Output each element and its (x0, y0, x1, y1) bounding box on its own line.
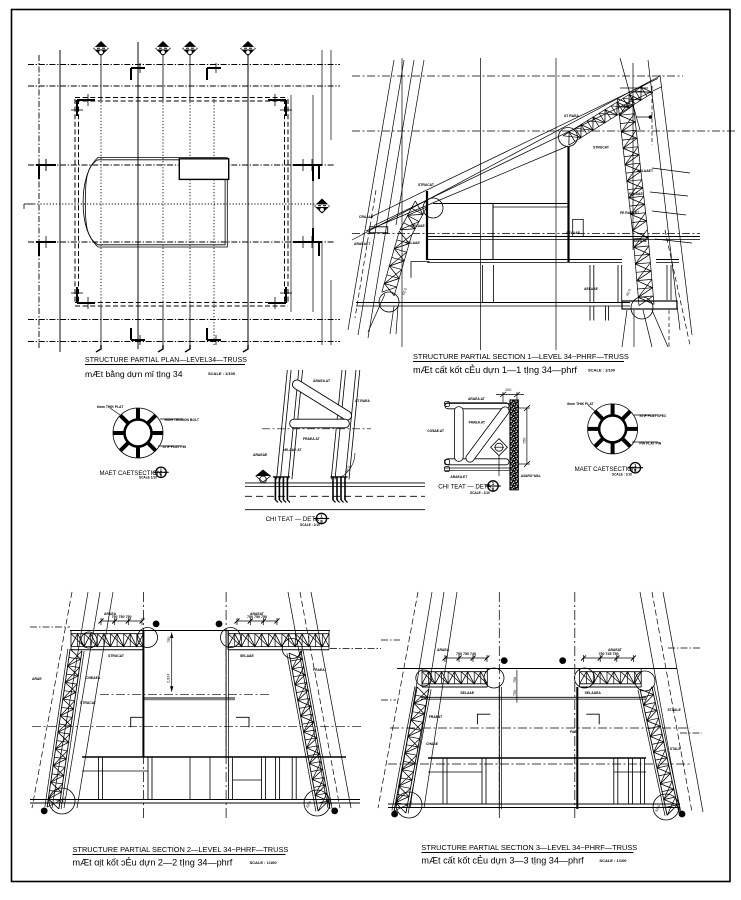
svg-text:6mm THIK PLAT: 6mm THIK PLAT (97, 405, 124, 409)
svg-text:CHI TEAT — DETA: CHI TEAT — DETA (266, 516, 320, 523)
svg-text:eELAAE AT: eELAAE AT (283, 448, 302, 452)
svg-text:1: 1 (634, 463, 637, 468)
svg-text:SELAAE: SELAAE (629, 192, 643, 196)
svg-text:SCALE 1/10: SCALE 1/10 (139, 476, 157, 480)
svg-text:62.5: 62.5 (625, 288, 632, 296)
svg-text:HIGH TENSION BOLT: HIGH TENSION BOLT (165, 418, 200, 422)
svg-text:FE RAEAET: FE RAEAET (620, 211, 640, 215)
svg-text:SELAAE: SELAAE (460, 691, 474, 695)
svg-text:STIF PLAT PIN: STIF PLAT PIN (163, 445, 187, 449)
svg-text:STRUCTURE PARTIAL SECTION 3: STRUCTURE PARTIAL SECTION 3—LEVEL 34~PHR… (421, 843, 637, 852)
svg-text:ARAEA: ARAEA (437, 648, 450, 652)
svg-text:ARAEA.ET: ARAEA.ET (450, 475, 467, 479)
svg-text:CHI TEAT — DETA: CHI TEAT — DETA (438, 484, 492, 491)
svg-text:FRAEA AT: FRAEA AT (303, 437, 321, 441)
svg-text:750: 750 (523, 438, 527, 444)
svg-text:1: 1 (320, 514, 323, 519)
svg-text:CRAALE: CRAALE (359, 215, 374, 219)
svg-text:STAALE: STAALE (667, 708, 681, 712)
svg-text:ARAEAET: ARAEAET (354, 242, 371, 246)
svg-text:62.5: 62.5 (305, 800, 312, 808)
svg-text:AT RAEA: AT RAEA (564, 114, 579, 118)
svg-text:STRUCTURE PARTIAL PLAN—LEVEL: STRUCTURE PARTIAL PLAN—LEVEL34—TRUSS (85, 357, 247, 364)
svg-text:AT RAEA: AT RAEA (355, 399, 370, 403)
svg-text:SCALE : 1/10: SCALE : 1/10 (470, 491, 490, 495)
svg-text:AELAAE: AELAAE (566, 231, 581, 235)
svg-text:ARAEA AT: ARAEA AT (313, 379, 331, 383)
svg-text:STRUCAT: STRUCAT (418, 183, 435, 187)
svg-text:SCALE : 1/10: SCALE : 1/10 (612, 473, 632, 477)
svg-text:ARAEAT: ARAEAT (608, 648, 623, 652)
svg-text:ARAEA: ARAEA (104, 612, 117, 616)
svg-text:SCALE : 1/100: SCALE : 1/100 (208, 371, 236, 376)
svg-text:SCALE : 1/100: SCALE : 1/100 (588, 368, 616, 373)
svg-text:750: 750 (167, 637, 171, 643)
svg-text:AELAAE: AELAAE (584, 287, 599, 291)
svg-text:STRUCAT: STRUCAT (80, 701, 97, 705)
svg-text:FRAEAT: FRAEAT (429, 715, 443, 719)
svg-text:1: 1 (492, 481, 495, 486)
svg-text:ARAE: ARAE (32, 677, 42, 681)
svg-text:FAE: FAE (570, 730, 577, 734)
svg-text:SCALE : 1/10: SCALE : 1/10 (300, 523, 320, 527)
svg-text:ARAEA.AT: ARAEA.AT (468, 397, 485, 401)
svg-text:PIN PLAT PIN: PIN PLAT PIN (639, 442, 661, 446)
svg-text:750: 750 (513, 677, 517, 683)
svg-text:SELAAE: SELAAE (406, 241, 420, 245)
svg-text:SELAAE: SELAAE (240, 654, 254, 658)
svg-text:mÆt cất kốt cẺu dựn 3—3 tỊng 3: mÆt cất kốt cẺu dựn 3—3 tỊng 34—phrf (421, 855, 584, 866)
svg-text:mÆt ɑịt kốt ɔẺu dựn 2—2 tỊng 3: mÆt ɑịt kốt ɔẺu dựn 2—2 tỊng 34—phrf (73, 857, 233, 868)
svg-text:STRUCTURE PARTIAL SECTION 2: STRUCTURE PARTIAL SECTION 2—LEVEL 34~PHR… (73, 845, 289, 854)
svg-text:STRUCTURE PARTIAL SECTION 1: STRUCTURE PARTIAL SECTION 1—LEVEL 34~PHR… (413, 352, 629, 361)
svg-text:STIF PLAT SPEC: STIF PLAT SPEC (639, 414, 667, 418)
svg-text:AELAAE: AELAAE (633, 239, 648, 243)
svg-text:1: 1 (160, 467, 163, 472)
svg-text:62.5: 62.5 (654, 804, 661, 812)
svg-text:100: 100 (505, 388, 511, 392)
svg-text:FRAEA.AT: FRAEA.AT (469, 420, 485, 424)
svg-text:6mm THIK PLAT: 6mm THIK PLAT (567, 402, 594, 406)
svg-text:CƠ8ΔΕ.AT: CƠ8ΔΕ.AT (427, 429, 444, 433)
svg-text:SELAAEA: SELAAEA (585, 691, 602, 695)
svg-text:CHAAE: CHAAE (426, 742, 439, 746)
svg-text:SCALE : 1/100: SCALE : 1/100 (599, 858, 627, 863)
svg-text:750 745 750: 750 745 750 (599, 652, 619, 656)
svg-text:750: 750 (513, 690, 517, 696)
svg-text:SELAAE: SELAAE (411, 224, 425, 228)
svg-text:ARAEAT: ARAEAT (250, 612, 265, 616)
svg-text:mÆt bằng dựn mǐ tỊng 34: mÆt bằng dựn mǐ tỊng 34 (85, 369, 183, 379)
svg-text:FRAEA: FRAEA (313, 668, 325, 672)
svg-text:ARAEAE: ARAEAE (253, 453, 268, 457)
svg-text:CHEAEA: CHEAEA (86, 676, 101, 680)
svg-text:SCALE : 1/100: SCALE : 1/100 (250, 860, 278, 865)
svg-text:A3ARƠ WAL: A3ARƠ WAL (521, 474, 541, 478)
svg-text:STRUCAT: STRUCAT (108, 654, 125, 658)
svg-text:mÆt cất kốt cẺu dựn 1—1 tỊng 3: mÆt cất kốt cẺu dựn 1—1 tỊng 34—phrf (413, 364, 577, 375)
svg-text:750 750 740: 750 750 740 (456, 652, 476, 656)
svg-text:STRUCAT: STRUCAT (593, 146, 610, 150)
svg-text:AELAAET: AELAAET (637, 169, 654, 173)
svg-text:STALE: STALE (670, 747, 682, 751)
svg-text:2,924: 2,924 (167, 673, 171, 683)
